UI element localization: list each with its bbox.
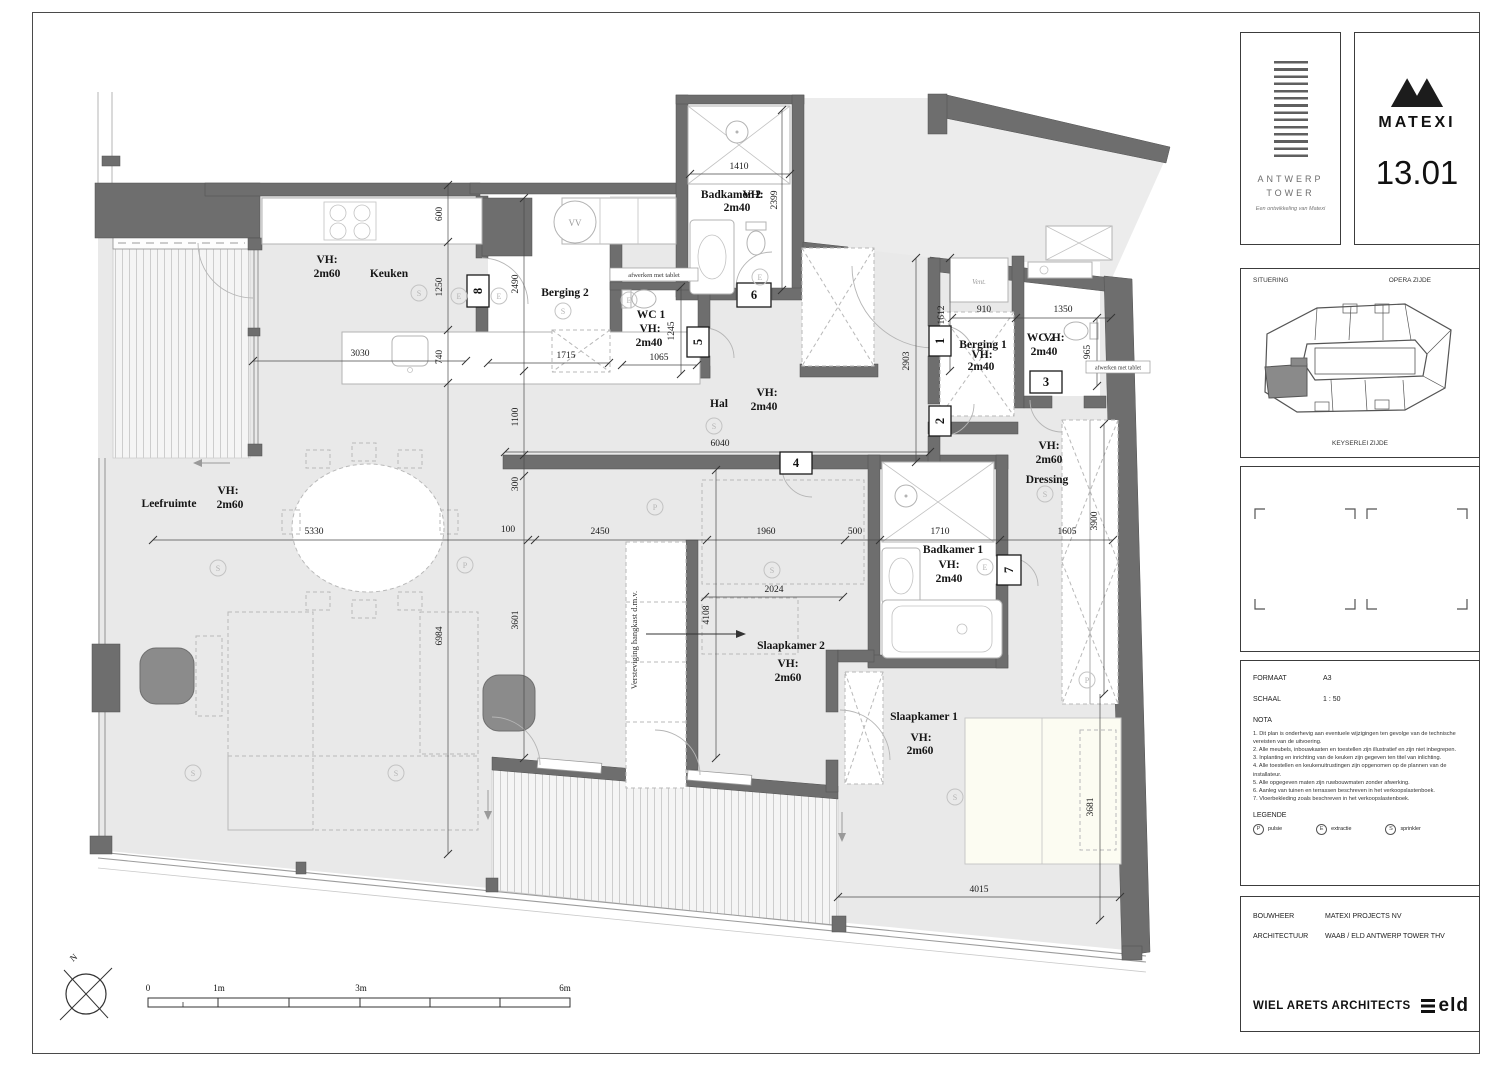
- formaat-value: A3: [1323, 675, 1332, 682]
- room-hal: Hal: [710, 398, 728, 410]
- svg-text:VH:: VH:: [742, 189, 763, 201]
- svg-text:2m40: 2m40: [636, 337, 663, 349]
- dim-1605: 1605: [1058, 527, 1077, 537]
- svg-text:2m40: 2m40: [968, 361, 995, 373]
- note-vent: Vent.: [972, 278, 986, 286]
- sprinkler-label: sprinkler: [1400, 826, 1420, 832]
- svg-text:S: S: [953, 793, 957, 802]
- antwerp-title-line2: TOWER: [1241, 187, 1340, 201]
- svg-text:2m60: 2m60: [217, 499, 244, 511]
- room-keuken: Keuken: [370, 268, 409, 280]
- drawing-sheet: 1410 2399 600 1250 740 6984 2490 1100 30…: [0, 0, 1509, 1067]
- unit-number: 13.01: [1355, 154, 1479, 192]
- svg-text:VH:: VH:: [1043, 332, 1064, 344]
- svg-text:2m60: 2m60: [1036, 454, 1063, 466]
- room-dressing: Dressing: [1026, 474, 1069, 486]
- dim-4015: 4015: [970, 885, 989, 895]
- scale-6m: 6m: [559, 983, 571, 993]
- antwerp-tagline: Een ontwikkeling van Matexi: [1241, 206, 1340, 212]
- extractie-symbol-icon: E: [1316, 824, 1327, 835]
- svg-text:2m60: 2m60: [314, 268, 341, 280]
- nota-item: 6. Aanleg van tuinen en terrassen beschr…: [1253, 787, 1467, 795]
- svg-text:VH:: VH:: [316, 254, 337, 266]
- dim-2903: 2903: [902, 351, 912, 370]
- dim-740: 740: [435, 350, 445, 365]
- dim-6984: 6984: [435, 626, 445, 645]
- door-tag-7: 7: [1002, 567, 1016, 573]
- dim-1612: 1612: [937, 305, 947, 324]
- svg-text:S: S: [1043, 490, 1047, 499]
- scale-bar: 0 1m 3m 6m: [146, 983, 571, 1007]
- dim-1100: 1100: [511, 407, 521, 426]
- dim-1410: 1410: [730, 162, 749, 172]
- wiel-arets-architects: WIEL ARETS ARCHITECTS: [1253, 1000, 1411, 1012]
- schaal-label: SCHAAL: [1253, 696, 1323, 703]
- svg-text:S: S: [216, 564, 220, 573]
- pulsie-label: pulsie: [1268, 826, 1282, 832]
- north-label: N: [68, 951, 80, 963]
- nota-item: 2. Alle meubels, inbouwkasten en toestel…: [1253, 746, 1467, 754]
- door-tag-2: 2: [933, 418, 947, 424]
- svg-text:P: P: [463, 561, 468, 570]
- matexi-title-block: MATEXI 13.01: [1354, 32, 1480, 245]
- dim-4108: 4108: [702, 605, 712, 624]
- svg-text:S: S: [712, 422, 716, 431]
- dim-500: 500: [848, 527, 863, 537]
- room-berging2: Berging 2: [541, 287, 589, 299]
- north-arrow: N: [60, 951, 112, 1020]
- eld-logo-bars-icon: [1421, 999, 1435, 1013]
- svg-text:E: E: [497, 292, 502, 301]
- svg-text:VH:: VH:: [777, 658, 798, 670]
- svg-text:2m60: 2m60: [775, 672, 802, 684]
- dim-100: 100: [501, 525, 516, 535]
- nota-label: NOTA: [1253, 717, 1467, 724]
- room-wc1: WC 1: [637, 309, 666, 321]
- dim-1960: 1960: [757, 527, 776, 537]
- dim-965: 965: [1083, 345, 1093, 360]
- architectuur-label: ARCHITECTUUR: [1253, 933, 1325, 940]
- svg-text:2m40: 2m40: [936, 573, 963, 585]
- antwerp-tower-title-block: ANTWERP TOWER Een ontwikkeling van Matex…: [1240, 32, 1341, 245]
- svg-text:P: P: [653, 503, 658, 512]
- dim-2490: 2490: [511, 274, 521, 293]
- situering-panel: SITUERING OPERA ZIJDE KEYSERLEI ZIJDE: [1240, 268, 1480, 458]
- scale-0: 0: [146, 983, 151, 993]
- nota-item: 1. Dit plan is onderhevig aan eventuele …: [1253, 730, 1467, 746]
- situering-label: SITUERING: [1253, 277, 1288, 284]
- architectuur-value: WAAB / ELD ANTWERP TOWER THV: [1325, 933, 1445, 940]
- credits-panel: BOUWHEER MATEXI PROJECTS NV ARCHITECTUUR…: [1240, 896, 1480, 1032]
- door-tag-5: 5: [691, 339, 705, 345]
- door-tag-1: 1: [933, 338, 947, 344]
- dim-3900: 3900: [1090, 511, 1100, 530]
- keyserlei-zijde-label: KEYSERLEI ZIJDE: [1241, 440, 1479, 447]
- room-badkamer1: Badkamer 1: [923, 544, 983, 556]
- svg-text:2m40: 2m40: [751, 401, 778, 413]
- svg-text:VH:: VH:: [971, 349, 992, 361]
- dim-600: 600: [435, 207, 445, 222]
- svg-text:VH:: VH:: [938, 559, 959, 571]
- legende-label: LEGENDE: [1253, 812, 1467, 819]
- svg-text:E: E: [457, 292, 462, 301]
- svg-text:2m40: 2m40: [1031, 346, 1058, 358]
- svg-text:E: E: [983, 563, 988, 572]
- door-tag-8: 8: [471, 288, 485, 294]
- nota-item: 4. Alle toestellen en keukenuitrustingen…: [1253, 762, 1467, 778]
- room-slaapkamer1: Slaapkamer 1: [890, 711, 958, 723]
- bouwheer-value: MATEXI PROJECTS NV: [1325, 913, 1402, 920]
- formaat-label: FORMAAT: [1253, 675, 1323, 682]
- dim-6040: 6040: [711, 439, 730, 449]
- antwerp-tower-logo-icon: [1274, 61, 1308, 159]
- dim-1065: 1065: [650, 353, 669, 363]
- svg-text:E: E: [758, 273, 763, 282]
- site-key-plan: [1255, 292, 1465, 422]
- svg-text:P: P: [1085, 676, 1090, 685]
- dim-300: 300: [511, 477, 521, 492]
- nota-item: 5. Alle opgegeven maten zijn ruwbouwmate…: [1253, 779, 1467, 787]
- registration-marks-panel: [1240, 466, 1480, 652]
- door-tag-6: 6: [751, 288, 757, 302]
- door-tag-4: 4: [793, 456, 800, 470]
- svg-text:S: S: [394, 769, 398, 778]
- room-leefruimte: Leefruimte: [142, 498, 197, 510]
- room-slaapkamer2: Slaapkamer 2: [757, 640, 825, 652]
- extractie-label: extractie: [1331, 826, 1351, 832]
- bouwheer-label: BOUWHEER: [1253, 913, 1325, 920]
- svg-text:S: S: [191, 769, 195, 778]
- svg-text:2m60: 2m60: [907, 745, 934, 757]
- note-afwerken-1: afwerken met tablet: [628, 272, 680, 279]
- nota-item: 3. Inplanting en inrichting van de keuke…: [1253, 754, 1467, 762]
- dim-3601: 3601: [511, 610, 521, 629]
- svg-text:VH:: VH:: [217, 485, 238, 497]
- svg-text:VH:: VH:: [756, 387, 777, 399]
- nota-item: 7. Vloerbekleding zoals beschreven in he…: [1253, 795, 1467, 803]
- dim-5330: 5330: [305, 527, 324, 537]
- sprinkler-symbol-icon: S: [1385, 824, 1396, 835]
- dim-1250: 1250: [435, 277, 445, 296]
- eld-logo-text: eld: [1439, 995, 1469, 1017]
- dim-2399: 2399: [770, 190, 780, 209]
- svg-text:E: E: [627, 296, 632, 305]
- corner-marks-icon: [1241, 467, 1479, 651]
- opera-zijde-label: OPERA ZIJDE: [1389, 277, 1431, 284]
- dim-1710: 1710: [931, 527, 950, 537]
- svg-text:S: S: [417, 289, 421, 298]
- scale-3m: 3m: [355, 983, 367, 993]
- scale-1m: 1m: [213, 983, 225, 993]
- dim-2450: 2450: [591, 527, 610, 537]
- dim-3681: 3681: [1086, 797, 1096, 816]
- dim-910: 910: [977, 305, 992, 315]
- dim-1245: 1245: [667, 321, 677, 340]
- dim-3030: 3030: [351, 349, 370, 359]
- dim-1715: 1715: [557, 351, 576, 361]
- svg-text:VH:: VH:: [639, 323, 660, 335]
- schaal-value: 1 : 50: [1323, 696, 1341, 703]
- pulsie-symbol-icon: P: [1253, 824, 1264, 835]
- matexi-logo-icon: [1355, 71, 1479, 112]
- svg-text:S: S: [770, 566, 774, 575]
- svg-text:S: S: [561, 307, 565, 316]
- note-afwerken-2: afwerken met tablet: [1095, 365, 1141, 372]
- antwerp-title-line1: ANTWERP: [1241, 173, 1340, 187]
- matexi-brand: MATEXI: [1355, 114, 1479, 132]
- svg-text:VH:: VH:: [1038, 440, 1059, 452]
- svg-text:VH:: VH:: [910, 732, 931, 744]
- info-panel: FORMAAT A3 SCHAAL 1 : 50 NOTA 1. Dit pla…: [1240, 660, 1480, 886]
- note-vv: VV: [569, 218, 582, 228]
- note-versteviging: Versteviging hangkast d.m.v.: [629, 591, 639, 689]
- svg-text:2m40: 2m40: [724, 202, 751, 214]
- door-tag-3: 3: [1043, 375, 1049, 389]
- dim-1350: 1350: [1054, 305, 1073, 315]
- dim-2024: 2024: [765, 585, 784, 595]
